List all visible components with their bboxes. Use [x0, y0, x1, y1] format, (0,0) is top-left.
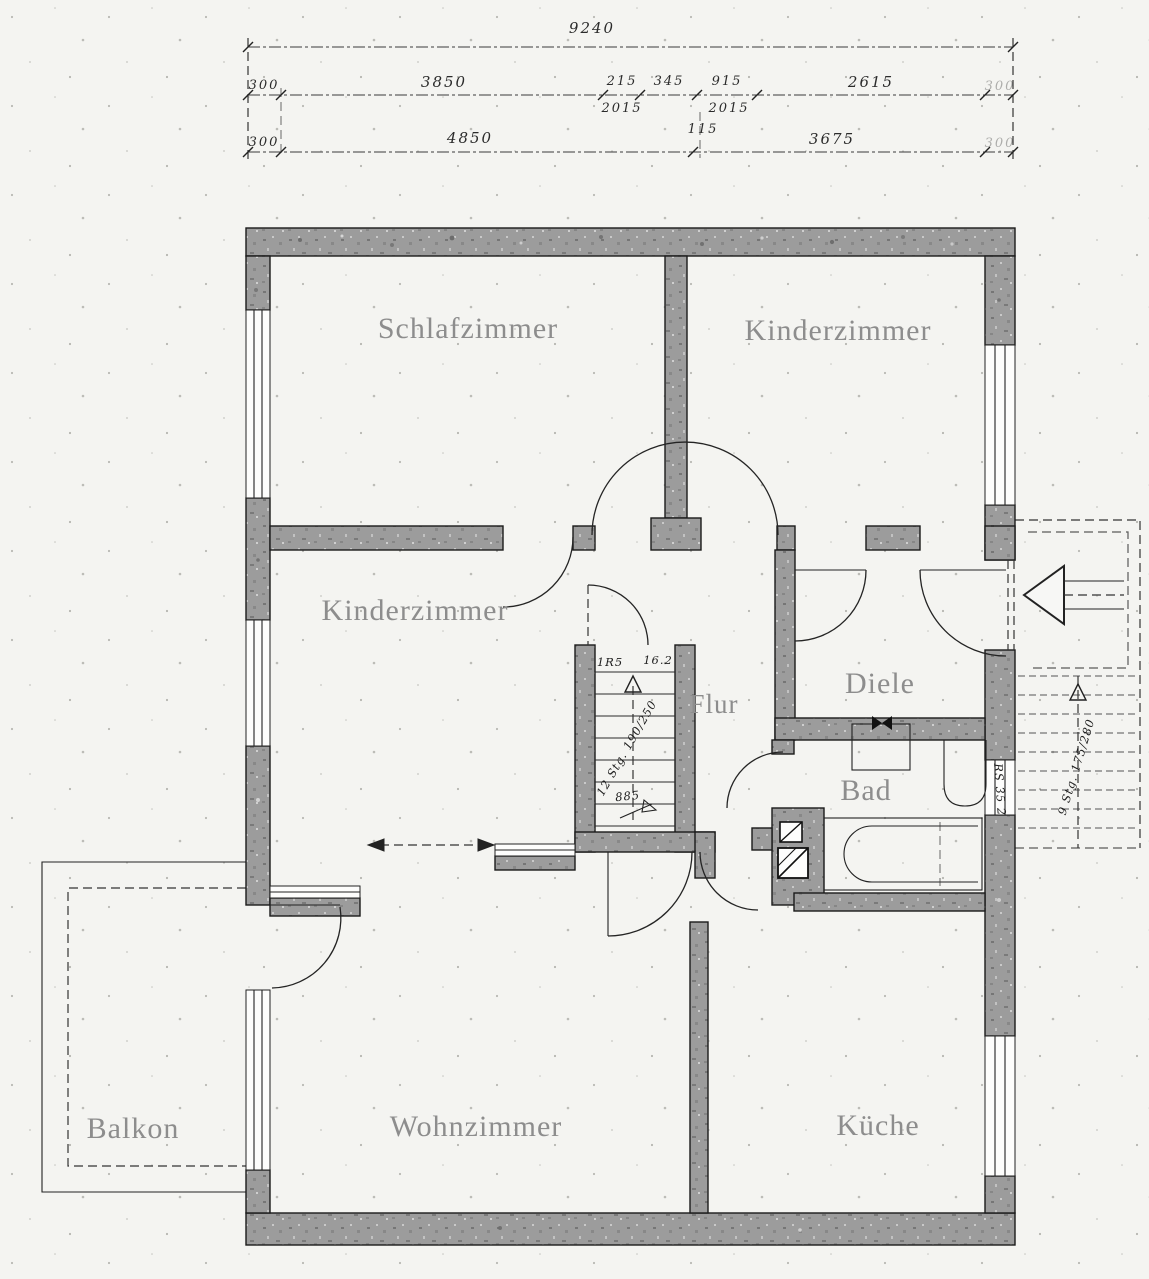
- label-diele: Diele: [845, 667, 915, 700]
- label-bad: Bad: [840, 774, 891, 807]
- stair-width-label: 885: [614, 788, 640, 805]
- dim-a-right: 300: [985, 79, 1016, 94]
- window-kueche: [985, 1036, 1015, 1176]
- label-kueche: Küche: [836, 1109, 919, 1142]
- dim-a-sub1: 2015: [707, 101, 749, 116]
- label-wohnzimmer: Wohnzimmer: [390, 1110, 563, 1143]
- dim-a3: 345: [654, 74, 685, 89]
- window-wohnzimmer: [246, 990, 270, 1170]
- dim-a-mid: 115: [688, 122, 719, 137]
- floor-plan-page: 9240 300 3850 215 345 915 2615 300 2015 …: [0, 0, 1149, 1279]
- dim-a5: 2615: [847, 73, 894, 91]
- label-kinderzimmer2: Kinderzimmer: [322, 594, 509, 627]
- label-kinderzimmer1: Kinderzimmer: [745, 314, 932, 347]
- dim-a2: 215: [606, 74, 638, 89]
- window-kinderzimmer2: [246, 620, 270, 746]
- label-schlafzimmer: Schlafzimmer: [378, 312, 558, 345]
- window-kinderzimmer1: [985, 345, 1015, 505]
- dim-a-sub0: 2015: [600, 101, 642, 116]
- stair-label-right: 16.2: [643, 653, 673, 667]
- label-flur: Flur: [689, 689, 738, 719]
- dim-b0: 300: [249, 135, 280, 150]
- dim-b2: 3675: [809, 130, 855, 148]
- dim-b1: 4850: [446, 129, 493, 147]
- dim-b-right: 300: [985, 136, 1016, 151]
- dim-a1: 3850: [421, 73, 467, 91]
- dim-a0: 300: [249, 78, 280, 93]
- stair-label-left: 1R5: [597, 655, 623, 669]
- paper-background: [0, 0, 1149, 1279]
- floor-plan-canvas: 9240 300 3850 215 345 915 2615 300 2015 …: [0, 0, 1149, 1279]
- dim-total: 9240: [569, 19, 615, 37]
- label-balkon: Balkon: [87, 1112, 180, 1145]
- dim-a4: 915: [712, 74, 743, 89]
- window-schlafzimmer: [246, 310, 270, 498]
